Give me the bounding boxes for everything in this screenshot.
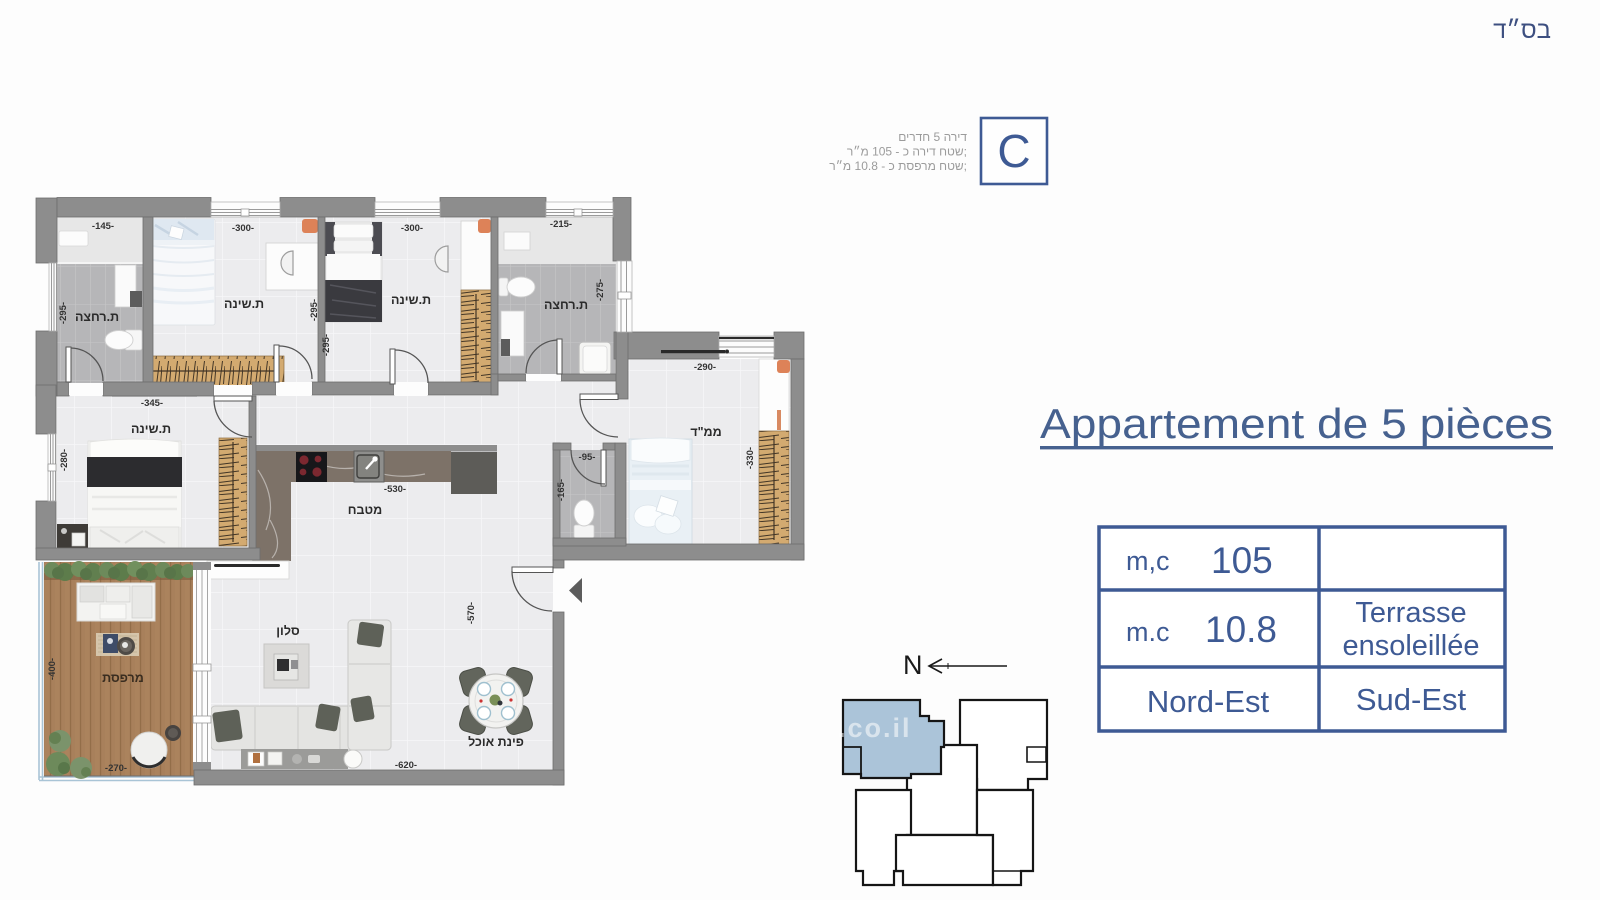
svg-text:10.8: 10.8: [1205, 609, 1277, 650]
svg-text:-300-: -300-: [232, 223, 254, 234]
svg-text:Terrasse: Terrasse: [1355, 597, 1466, 629]
svg-text:.co.il: .co.il: [838, 713, 912, 743]
svg-text:-570-: -570-: [466, 602, 477, 624]
svg-text:-290-: -290-: [694, 362, 716, 373]
svg-text:Nord-Est: Nord-Est: [1147, 684, 1270, 719]
svg-text:פינת אוכל: פינת אוכל: [468, 735, 524, 749]
svg-text:סלון: סלון: [276, 624, 300, 638]
svg-text:-345-: -345-: [141, 398, 163, 409]
svg-text:בס״ד: בס״ד: [1493, 17, 1551, 44]
svg-text:מרפסת: מרפסת: [102, 671, 144, 685]
svg-text:Appartement de 5 pièces: Appartement de 5 pièces: [1040, 400, 1553, 447]
svg-text:מטבח: מטבח: [348, 503, 382, 517]
svg-text:ת.שינה: ת.שינה: [224, 297, 264, 311]
svg-text:-280-: -280-: [59, 449, 70, 471]
svg-text:-295-: -295-: [309, 299, 320, 321]
svg-text:-270-: -270-: [105, 763, 127, 774]
svg-text:שטח מרפסת כ - 10.8 מ״ר;: שטח מרפסת כ - 10.8 מ״ר;: [829, 159, 967, 173]
svg-text:-330-: -330-: [745, 447, 756, 469]
svg-text:-400-: -400-: [47, 658, 58, 680]
svg-text:-530-: -530-: [384, 484, 406, 495]
svg-text:ת.שינה: ת.שינה: [391, 293, 431, 307]
svg-text:N: N: [903, 650, 923, 680]
svg-text:ensoleillée: ensoleillée: [1342, 630, 1479, 662]
svg-text:C: C: [997, 125, 1030, 177]
svg-text:-295-: -295-: [321, 334, 332, 356]
svg-text:-300-: -300-: [401, 223, 423, 234]
svg-text:-275-: -275-: [595, 279, 606, 301]
svg-text:ת.רחצה: ת.רחצה: [544, 298, 588, 312]
svg-text:ת.שינה: ת.שינה: [131, 422, 171, 436]
svg-text:ת.רחצה: ת.רחצה: [75, 310, 119, 324]
svg-text:Sud-Est: Sud-Est: [1356, 682, 1467, 717]
svg-text:שטח דירה כ - 105 מ״ר;: שטח דירה כ - 105 מ״ר;: [847, 145, 967, 159]
svg-text:-145-: -145-: [92, 221, 114, 232]
svg-text:דירה 5 חדרים: דירה 5 חדרים: [898, 130, 967, 144]
svg-text:m.c: m.c: [1126, 617, 1170, 647]
svg-text:-215-: -215-: [550, 219, 572, 230]
svg-text:m,c: m,c: [1126, 546, 1170, 576]
svg-text:-620-: -620-: [395, 760, 417, 771]
svg-text:-95-: -95-: [579, 452, 596, 463]
svg-text:ממ"ד: ממ"ד: [690, 425, 721, 439]
svg-text:105: 105: [1211, 540, 1273, 581]
svg-text:-165-: -165-: [556, 479, 567, 501]
svg-text:-295-: -295-: [58, 302, 69, 324]
